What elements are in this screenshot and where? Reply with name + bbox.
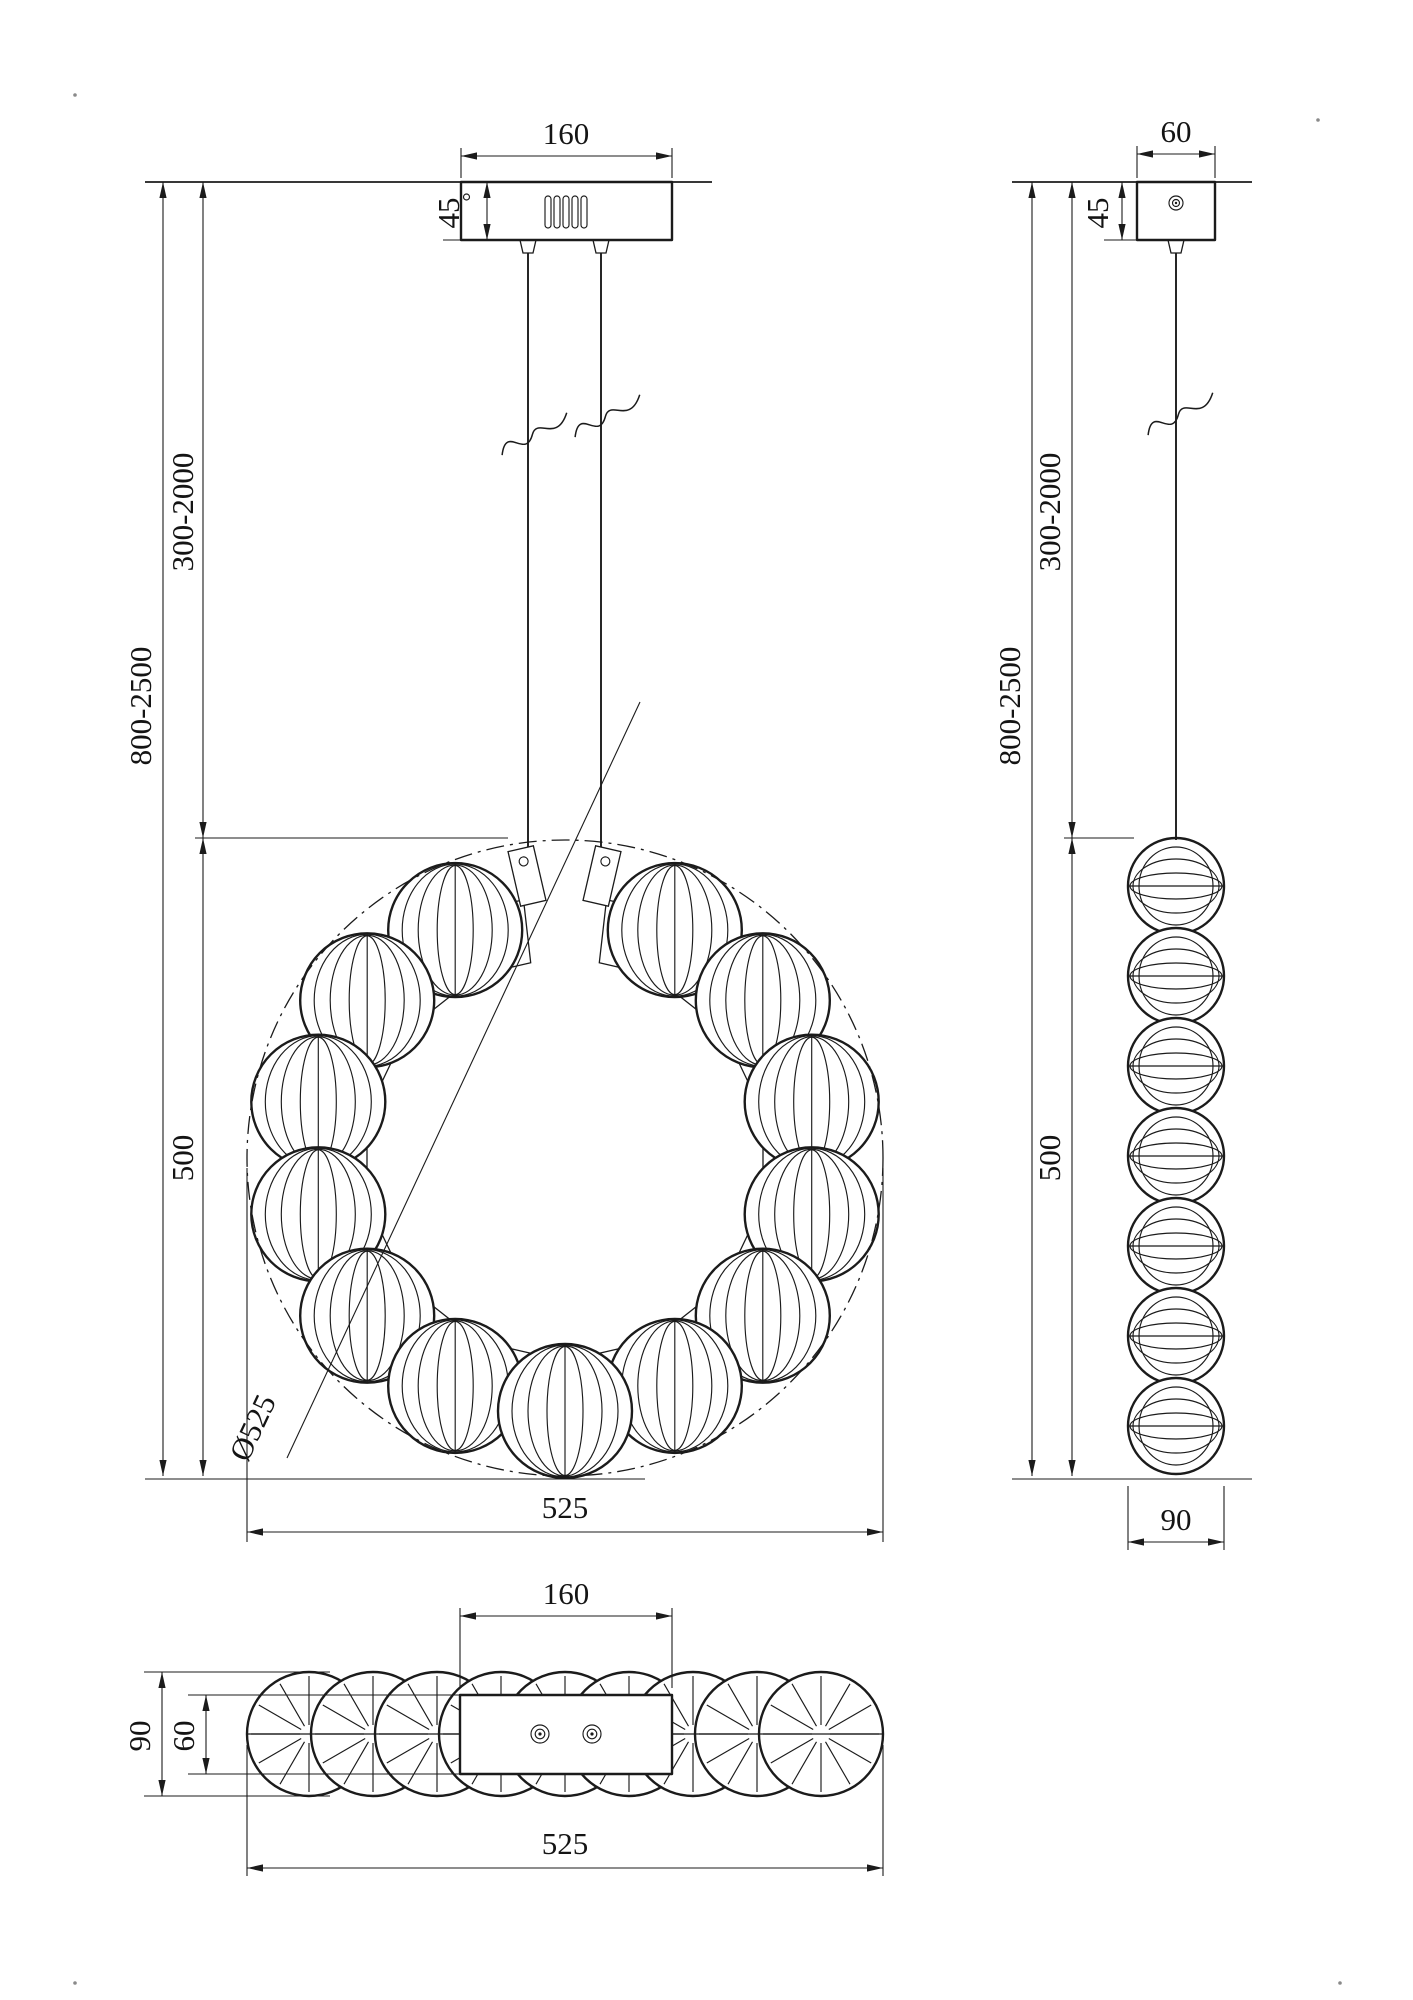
cable-break-icon — [1142, 393, 1218, 435]
drawing-page: 160 45 800-2500 300-2000 500 Ø525 525 60… — [0, 0, 1413, 2000]
side-cable-stub — [1168, 240, 1184, 253]
bottom-overall-depth-dim-label: 90 — [122, 1721, 157, 1752]
side-canopy-width-dim-label: 60 — [1161, 114, 1192, 149]
mounting-plate — [460, 1695, 672, 1774]
bottom-plate-depth-dim-label: 60 — [166, 1721, 201, 1752]
cable-break-icon — [569, 395, 645, 437]
left-cable-stub — [520, 240, 536, 253]
technical-drawing: 160 45 800-2500 300-2000 500 Ø525 525 60… — [0, 0, 1413, 2000]
side-view-group — [1128, 182, 1224, 1474]
side-overall-depth-dim-label: 90 — [1161, 1502, 1192, 1537]
front-suspension-dim-label: 300-2000 — [165, 453, 200, 572]
corner-mark — [1338, 1981, 1342, 1985]
bottom-plate-width-dim-label: 160 — [543, 1576, 590, 1611]
front-view-group — [251, 182, 878, 1478]
bottom-view-group — [247, 1672, 883, 1796]
front-total-height-dim-label: 800-2500 — [123, 647, 158, 766]
front-canopy-height-dim-label: 45 — [431, 198, 466, 229]
front-canopy-width-dim-label: 160 — [543, 116, 590, 151]
canopy-side — [1137, 182, 1215, 240]
front-overall-width-dim-label: 525 — [542, 1490, 589, 1525]
right-cable-stub — [593, 240, 609, 253]
side-suspension-dim-label: 300-2000 — [1032, 453, 1067, 572]
canopy-front — [461, 182, 672, 240]
corner-mark — [1316, 118, 1320, 122]
stack-beads — [1128, 838, 1224, 1474]
corner-mark — [73, 93, 77, 97]
side-canopy-height-dim-label: 45 — [1080, 198, 1115, 229]
bottom-overall-width-dim-label: 525 — [542, 1826, 589, 1861]
front-body-height-dim-label: 500 — [165, 1135, 200, 1182]
cable-break-icon — [496, 413, 572, 455]
side-total-height-dim-label: 800-2500 — [992, 647, 1027, 766]
front-diameter-dim-label: Ø525 — [222, 1389, 283, 1466]
corner-mark — [73, 1981, 77, 1985]
side-body-height-dim-label: 500 — [1032, 1135, 1067, 1182]
ring-beads — [251, 863, 878, 1478]
